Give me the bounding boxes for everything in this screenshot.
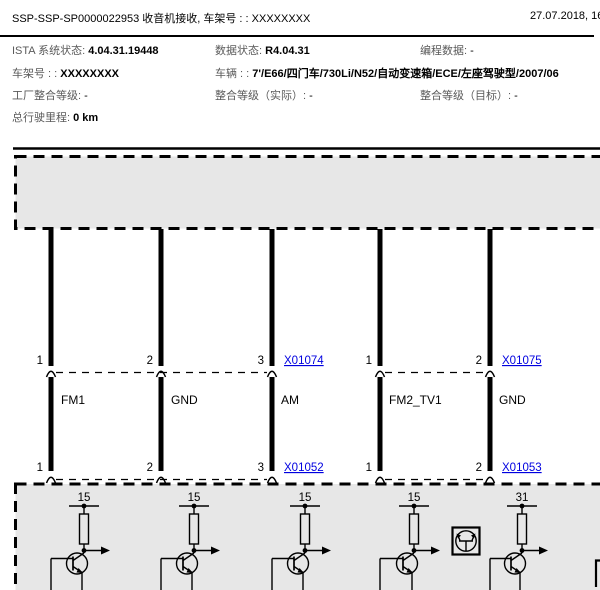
connector-pin-icon bbox=[486, 371, 495, 377]
connector-pin-icon bbox=[486, 477, 495, 483]
pin-number: 2 bbox=[147, 462, 153, 474]
pin-number: 1 bbox=[37, 462, 43, 474]
wire-label-fm1: FM1 bbox=[61, 393, 85, 407]
pin-number: 3 bbox=[258, 462, 264, 474]
connector-pin-icon bbox=[376, 371, 385, 377]
wire-label-gnd1: GND bbox=[171, 393, 198, 407]
pin-number: 2 bbox=[147, 355, 153, 367]
header-separator bbox=[0, 35, 594, 37]
target-level-value: - bbox=[514, 90, 518, 102]
vehicle-label: 车辆 : : bbox=[215, 68, 249, 80]
connector-link-x01075[interactable]: X01075 bbox=[502, 355, 542, 367]
pin-number: 1 bbox=[37, 355, 43, 367]
factory-level-value: - bbox=[84, 90, 88, 102]
mileage-label: 总行驶里程: bbox=[12, 112, 70, 124]
actual-level-label: 整合等级（实际）: bbox=[215, 90, 306, 102]
pin-number: 1 bbox=[366, 355, 372, 367]
wire-label-gnd2: GND bbox=[499, 393, 526, 407]
pin-number: 3 bbox=[258, 355, 264, 367]
antenna-module-box bbox=[16, 157, 600, 229]
connector-pin-icon bbox=[47, 477, 56, 483]
connector-pin-icon bbox=[268, 371, 277, 377]
connector-link-x01052[interactable]: X01052 bbox=[284, 462, 324, 474]
ista-status-label: ISTA 系统状态: bbox=[12, 45, 85, 57]
pin-number: 2 bbox=[476, 355, 482, 367]
terminal-label: 15 bbox=[78, 492, 91, 504]
target-level-label: 整合等级（目标）: bbox=[420, 90, 511, 102]
connector-pin-icon bbox=[47, 371, 56, 377]
pin-number: 1 bbox=[366, 462, 372, 474]
terminal-label: 15 bbox=[188, 492, 201, 504]
terminal-label: 15 bbox=[299, 492, 312, 504]
factory-level-label: 工厂整合等级: bbox=[12, 90, 81, 102]
actual-level-value: - bbox=[309, 90, 313, 102]
programming-data-label: 编程数据: bbox=[420, 45, 467, 57]
connector-link-x01053[interactable]: X01053 bbox=[502, 462, 542, 474]
vin-value: XXXXXXXX bbox=[60, 68, 119, 80]
connector-link-x01074[interactable]: X01074 bbox=[284, 355, 324, 367]
header-datetime: 27.07.2018, 16:3 bbox=[530, 10, 600, 22]
page-title: SSP-SSP-SP0000022953 收音机接收, 车架号 : : XXXX… bbox=[12, 10, 310, 26]
programming-data-value: - bbox=[470, 45, 474, 57]
pin-number: 2 bbox=[476, 462, 482, 474]
ista-report-page: SSP-SSP-SP0000022953 收音机接收, 车架号 : : XXXX… bbox=[0, 0, 600, 590]
wire-label-am: AM bbox=[281, 393, 299, 407]
wiring-diagram: 1 2 3 1 2 X01074 X01075 FM1 GND AM FM2_T… bbox=[0, 145, 600, 590]
connector-pin-icon bbox=[268, 477, 277, 483]
vin-label: 车架号 : : bbox=[12, 68, 57, 80]
data-status-value: R4.04.31 bbox=[265, 45, 310, 57]
ista-status-value: 4.04.31.19448 bbox=[88, 45, 158, 57]
connector-pin-icon bbox=[376, 477, 385, 483]
vehicle-value: 7'/E66/四门车/730Li/N52/自动变速箱/ECE/左座驾驶型/200… bbox=[252, 68, 558, 80]
data-status-label: 数据状态: bbox=[215, 45, 262, 57]
mileage-value: 0 km bbox=[73, 112, 98, 124]
terminal-label: 15 bbox=[408, 492, 421, 504]
wire-label-fm2tv1: FM2_TV1 bbox=[389, 393, 442, 407]
terminal-label: 31 bbox=[516, 492, 529, 504]
